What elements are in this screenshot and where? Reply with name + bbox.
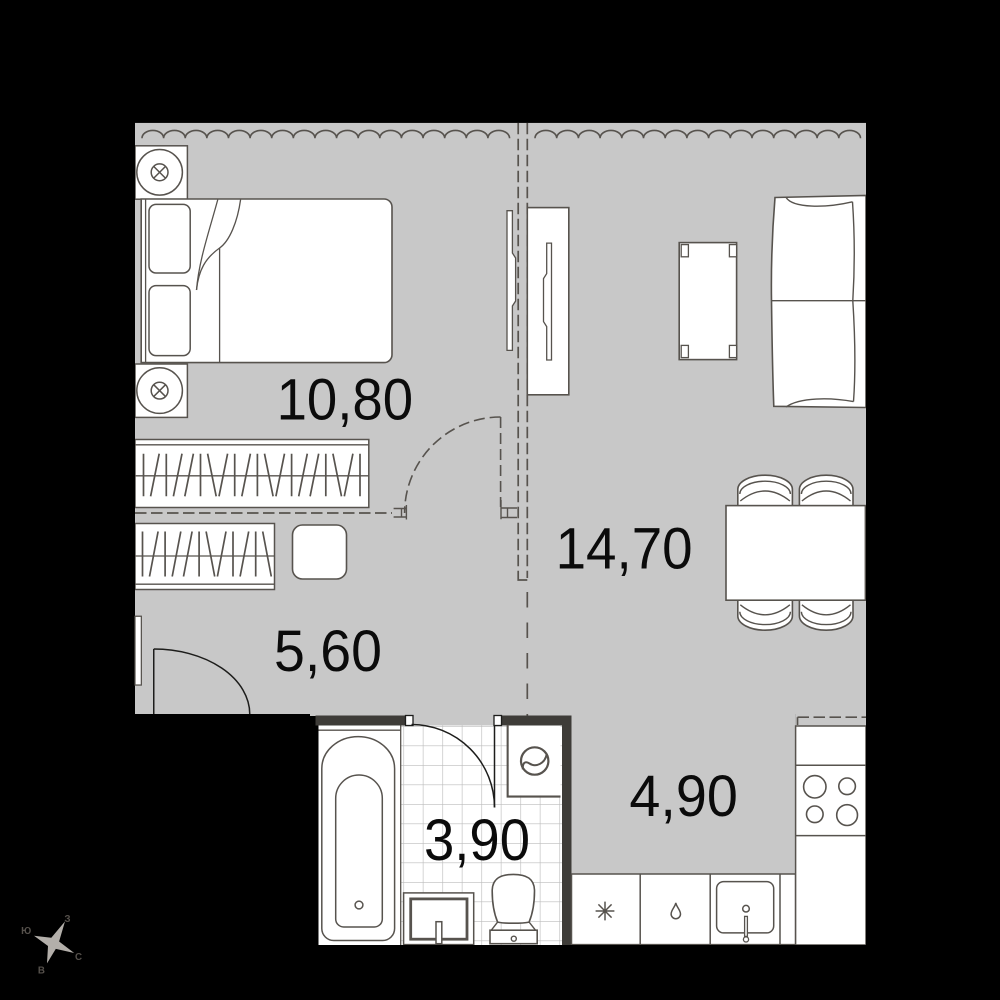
svg-text:З: З: [64, 914, 70, 925]
svg-text:Ю: Ю: [21, 926, 31, 937]
svg-text:14,70: 14,70: [556, 516, 693, 581]
svg-text:В: В: [38, 965, 45, 976]
svg-text:10,80: 10,80: [277, 367, 414, 432]
svg-text:С: С: [75, 952, 82, 963]
svg-text:3,90: 3,90: [424, 808, 530, 873]
svg-text:4,90: 4,90: [629, 764, 738, 829]
svg-text:5,60: 5,60: [274, 619, 382, 684]
